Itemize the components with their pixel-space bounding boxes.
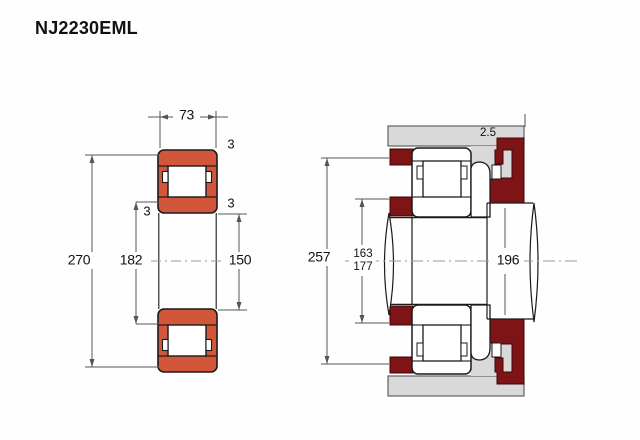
drawing-canvas: NJ2230EML	[0, 0, 640, 440]
right-view-mounting: 257 163 177 196 2.5	[304, 114, 578, 396]
roller	[168, 166, 206, 197]
shaft-break-left	[385, 213, 394, 315]
cage-right	[206, 172, 212, 183]
dim-label-182: 182	[120, 252, 143, 268]
dim-label-196: 196	[497, 252, 520, 268]
housing-shoulder	[390, 149, 413, 165]
cage-left	[417, 166, 423, 179]
shaft-break-right	[530, 203, 538, 322]
bearing-section-block	[158, 150, 217, 213]
dim-label-2-5: 2.5	[480, 127, 496, 139]
chamfer-label-outer: 3	[227, 136, 234, 151]
dim-label-163: 163	[353, 248, 372, 260]
arrangement-half	[390, 138, 524, 217]
technical-drawing: 73 270 182	[0, 0, 640, 440]
dim-label-270: 270	[68, 252, 91, 268]
chamfer-label-left: 3	[143, 203, 150, 218]
chamfer-label-right: 3	[227, 195, 234, 210]
left-view-bearing-section: 73 270 182	[64, 107, 255, 372]
dim-label-177: 177	[353, 261, 372, 273]
cage-right	[461, 166, 467, 179]
cage-left	[163, 172, 169, 183]
shaft-shoulder	[390, 197, 413, 216]
dim-label-150: 150	[229, 252, 252, 268]
relief-groove	[492, 165, 501, 179]
roller	[423, 161, 461, 197]
dim-label-73: 73	[179, 107, 194, 123]
dim-label-257: 257	[308, 249, 331, 265]
